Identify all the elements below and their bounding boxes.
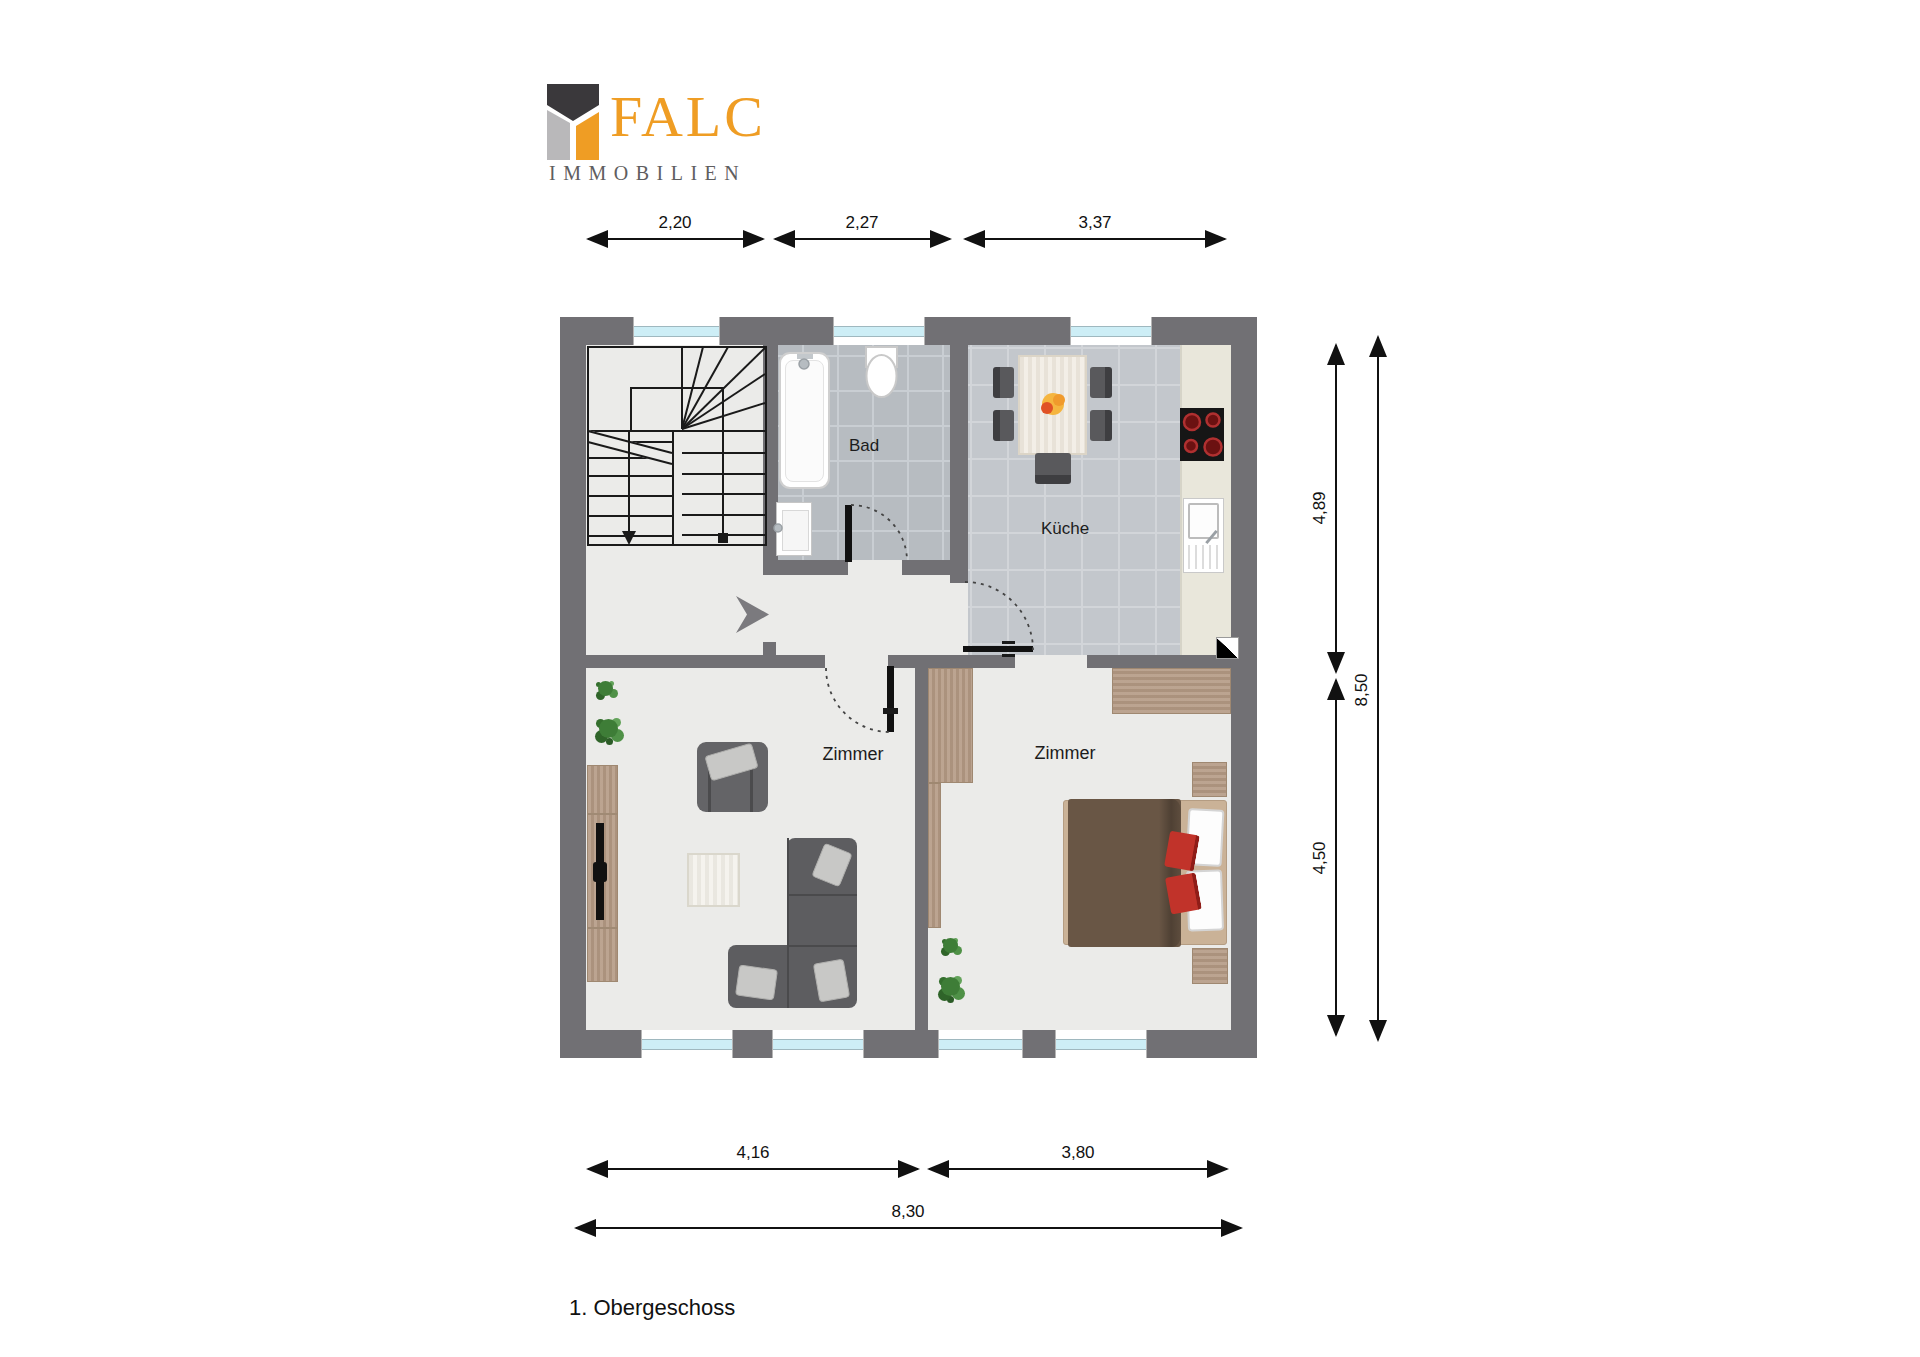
bed-duvet bbox=[1068, 799, 1181, 947]
wall-bottom-4 bbox=[1021, 1030, 1055, 1058]
kitchen-sink bbox=[1183, 498, 1224, 573]
sofa-cushion-2 bbox=[813, 959, 850, 1003]
dim-top-3: 3,37 bbox=[1078, 213, 1111, 233]
plant-bedroom-2 bbox=[941, 977, 960, 996]
bed-cushion-red-bottom bbox=[1165, 873, 1202, 915]
plant-bedroom-1 bbox=[943, 938, 958, 953]
chair-left-top bbox=[993, 367, 1014, 398]
bath-sink bbox=[776, 502, 812, 556]
bed bbox=[1063, 800, 1227, 945]
wall-hall-living bbox=[586, 655, 825, 668]
bedroom-shelf-left bbox=[928, 783, 941, 928]
floorplan-page: FALC IMMOBILIEN bbox=[0, 0, 1920, 1357]
wall-bottom-3 bbox=[862, 1030, 938, 1058]
armchair bbox=[697, 742, 768, 812]
stove bbox=[1180, 408, 1224, 461]
dim-right-3: 8,50 bbox=[1352, 673, 1372, 706]
dim-bottom-3: 8,30 bbox=[891, 1202, 924, 1222]
dim-right-1: 4,89 bbox=[1310, 491, 1330, 524]
dim-top-2: 2,27 bbox=[845, 213, 878, 233]
bathtub bbox=[779, 352, 830, 489]
wall-top-3 bbox=[923, 317, 1070, 345]
window-bottom-bed-1 bbox=[938, 1030, 1023, 1058]
falc-logo bbox=[546, 84, 600, 160]
wall-bed-top-left bbox=[888, 655, 1015, 668]
chair-right-bottom bbox=[1090, 410, 1112, 441]
wall-bed-top-right bbox=[1087, 655, 1231, 668]
floor-title: 1. Obergeschoss bbox=[569, 1295, 735, 1321]
room-label-bath: Bad bbox=[849, 436, 879, 456]
wall-bath-bottom-right bbox=[902, 560, 950, 575]
chair-right-top bbox=[1090, 367, 1112, 398]
nightstand-top bbox=[1192, 762, 1227, 797]
sofa bbox=[728, 838, 857, 1008]
wall-left bbox=[560, 317, 586, 1058]
dim-top-1: 2,20 bbox=[658, 213, 691, 233]
room-label-bedroom: Zimmer bbox=[1035, 743, 1096, 764]
window-top-bath bbox=[833, 317, 925, 345]
chair-bottom bbox=[1035, 453, 1071, 484]
room-label-living: Zimmer bbox=[823, 744, 884, 765]
brand-text: FALC bbox=[610, 88, 766, 146]
wall-right bbox=[1231, 317, 1257, 1058]
window-bottom-living-1 bbox=[641, 1030, 733, 1058]
dim-bottom-2: 3,80 bbox=[1061, 1143, 1094, 1163]
window-bottom-bed-2 bbox=[1055, 1030, 1147, 1058]
plant-living-1 bbox=[598, 681, 613, 696]
wall-hall-pillar bbox=[763, 642, 776, 655]
wall-room-divider bbox=[915, 655, 928, 1030]
wall-bottom-2 bbox=[731, 1030, 772, 1058]
wall-bath-bottom-left bbox=[775, 560, 848, 575]
dim-bottom-1: 4,16 bbox=[736, 1143, 769, 1163]
wall-top-2 bbox=[718, 317, 833, 345]
window-bottom-living-2 bbox=[772, 1030, 864, 1058]
kitchen-corner-symbol bbox=[1216, 637, 1239, 659]
tv-mount bbox=[593, 862, 607, 882]
window-top-kitchen bbox=[1070, 317, 1152, 345]
chair-left-bottom bbox=[993, 410, 1014, 441]
nightstand-bottom bbox=[1192, 948, 1228, 984]
bedroom-wardrobe-top bbox=[1112, 668, 1231, 714]
bed-cushion-red-top bbox=[1164, 831, 1200, 872]
brand-tagline: IMMOBILIEN bbox=[549, 162, 746, 185]
dim-right-2: 4,50 bbox=[1310, 841, 1330, 874]
sofa-cushion-3 bbox=[735, 964, 778, 1000]
bedroom-wardrobe-left bbox=[928, 668, 973, 783]
dining-table bbox=[1018, 355, 1087, 455]
falc-logo-icon bbox=[546, 84, 600, 160]
plant-living-2 bbox=[599, 719, 618, 738]
window-top-stairs bbox=[633, 317, 720, 345]
wall-bath-kitchen bbox=[950, 345, 968, 583]
room-label-kitchen: Küche bbox=[1041, 519, 1089, 539]
